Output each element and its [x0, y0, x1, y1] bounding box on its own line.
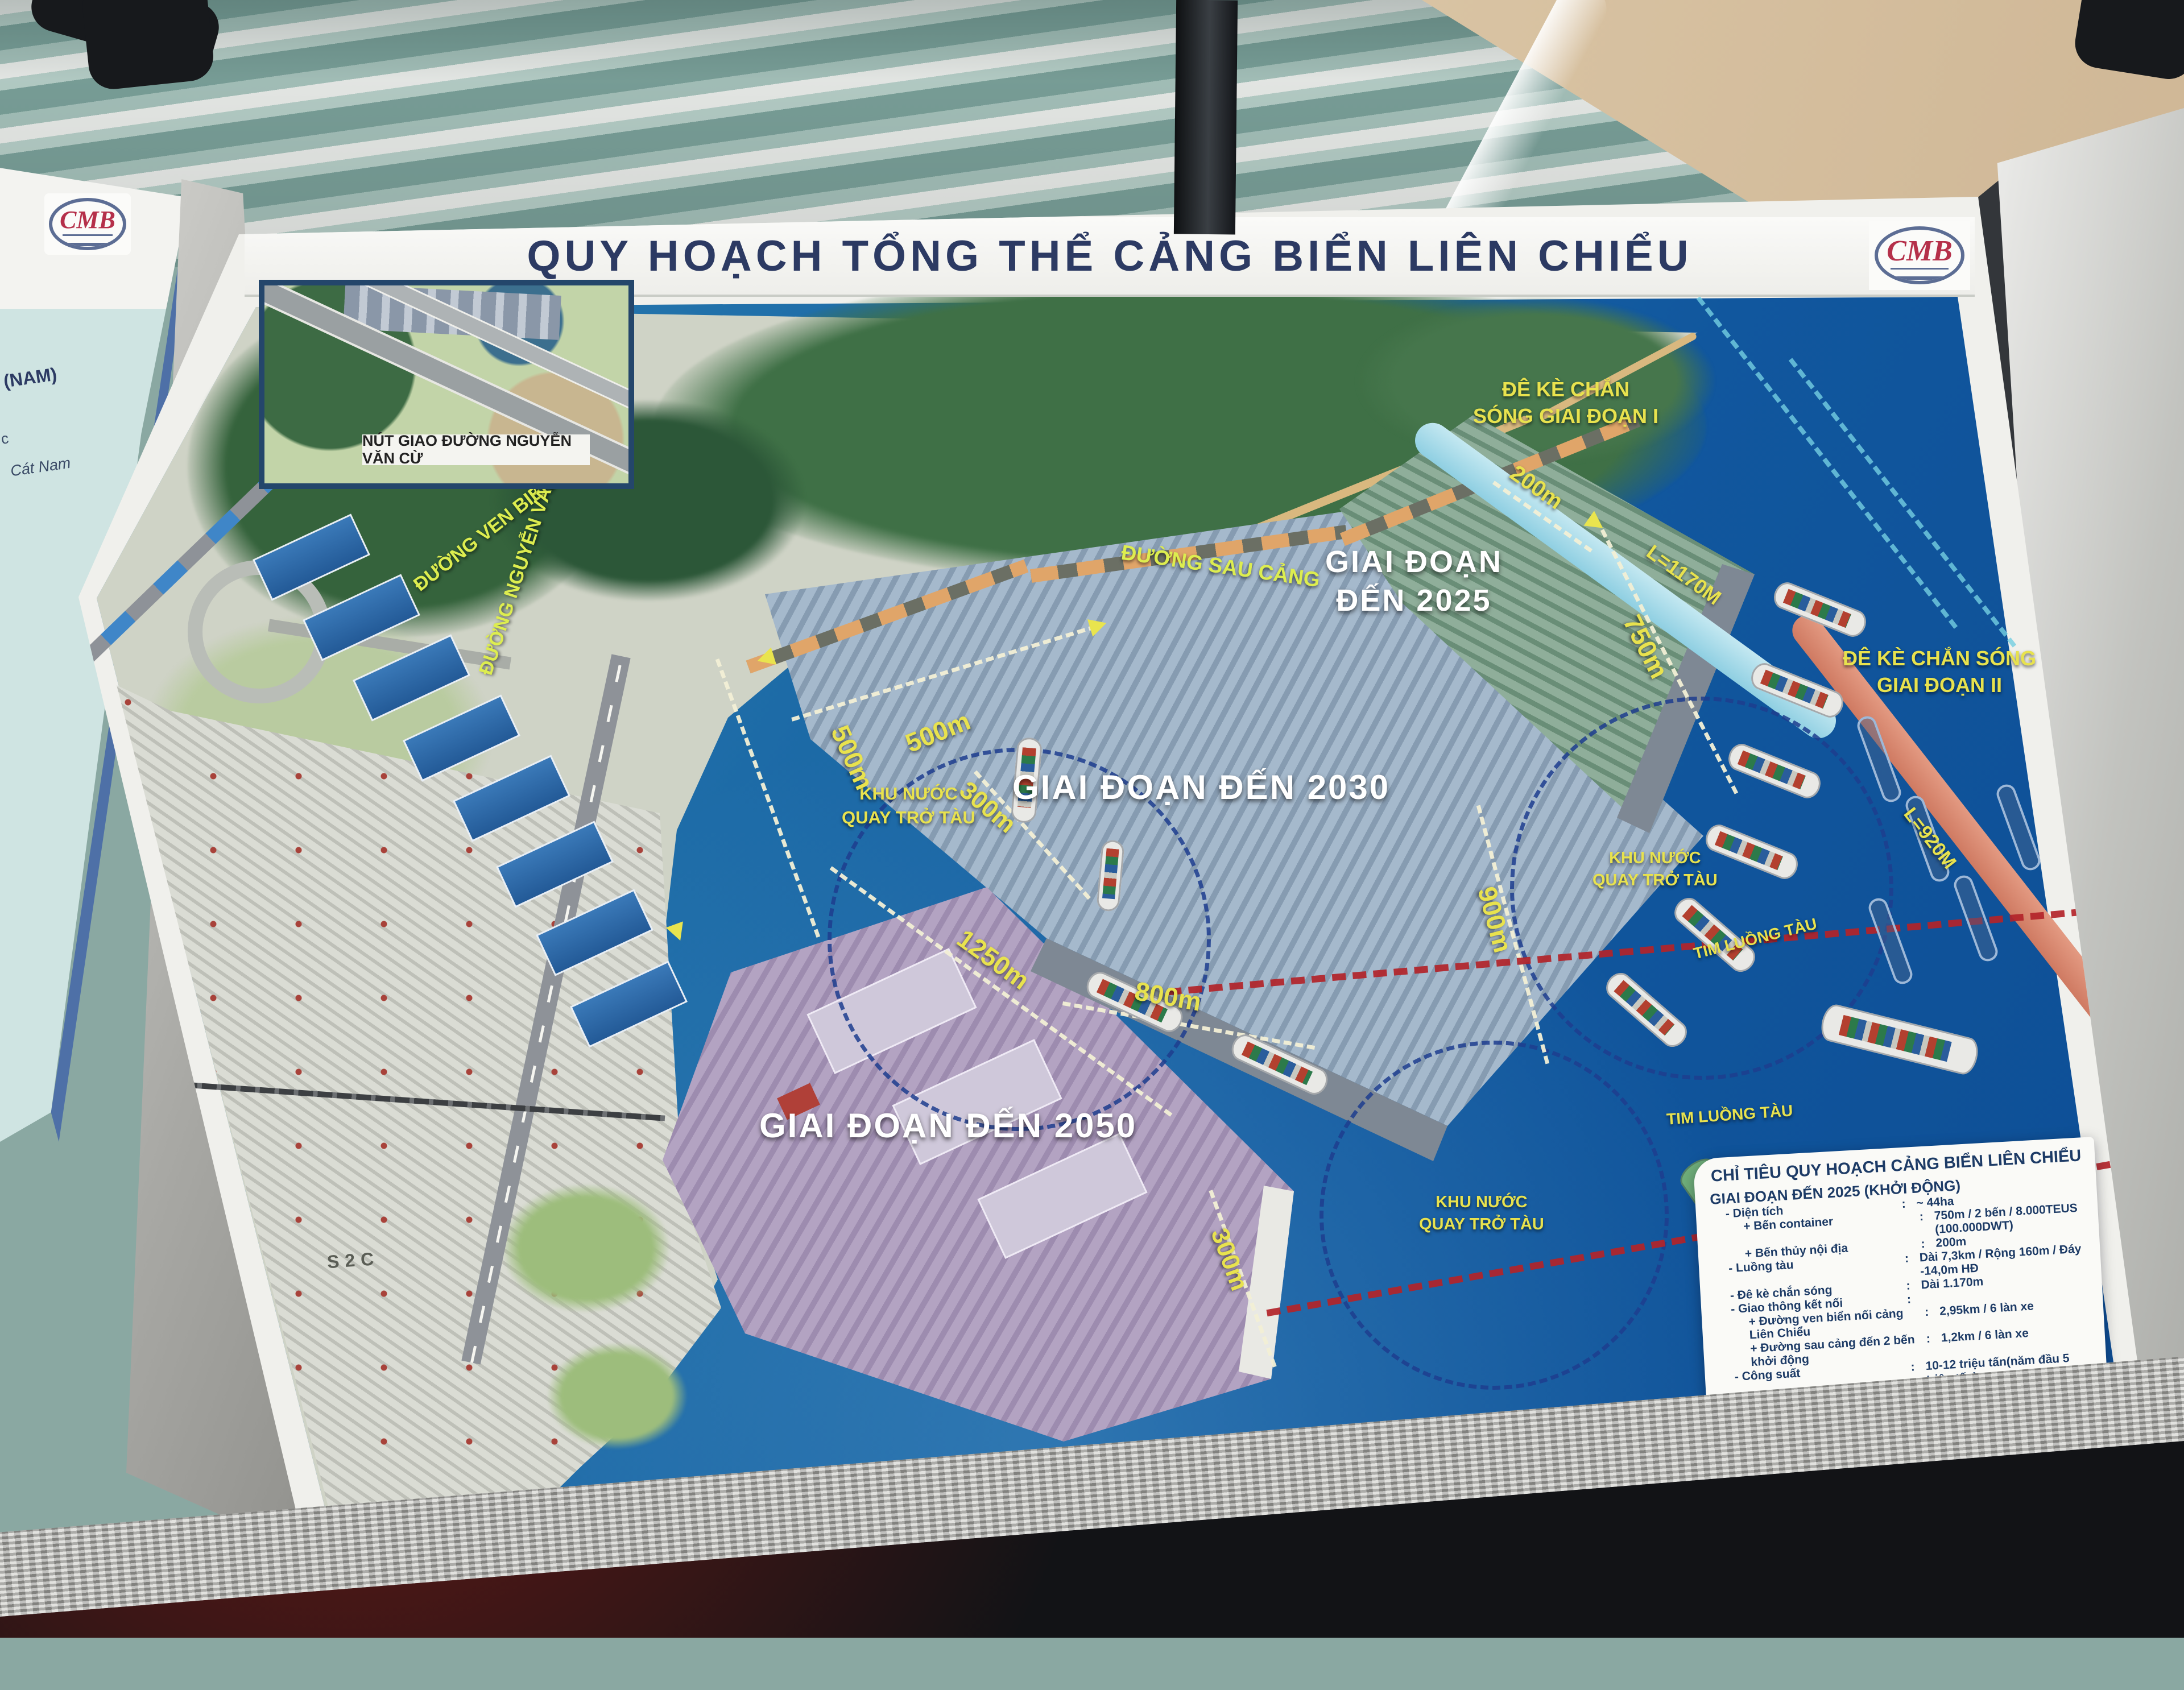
person-silhouette-shoulder	[80, 0, 216, 92]
spec-row-colon: :	[1925, 1304, 1941, 1332]
breakwater2-label: ĐÊ KÈ CHẮN SÓNG GIAI ĐOẠN II	[1843, 645, 2036, 699]
cmb-logo: CMB	[1869, 221, 1970, 290]
breakwater1-label: ĐÊ KÈ CHẮN SÓNG GIAI ĐOẠN I	[1473, 376, 1658, 430]
spec-row-colon: :	[1901, 1197, 1917, 1211]
phase-2025-line2: ĐẾN 2025	[1325, 582, 1503, 620]
park-green	[500, 1183, 671, 1314]
phase-2025-line1: GIAI ĐOẠN	[1325, 543, 1503, 582]
spec-row-colon: :	[1927, 1654, 1942, 1668]
inset-caption: NÚT GIAO ĐƯỜNG NGUYỄN VĂN CỪ	[362, 434, 590, 465]
breakwater1-line2: SÓNG GIAI ĐOẠN I	[1473, 403, 1658, 430]
spec-row-colon: :	[1921, 1237, 1936, 1251]
photo-of-port-masterplan-poster: { "colors": { "sea": "#11579e", "phase_2…	[0, 0, 2184, 1638]
spec-row-value: ~90ha	[1942, 1645, 2112, 1668]
frame-marking: S2C	[326, 1248, 380, 1273]
park-green	[546, 1342, 688, 1450]
basin-line1: KHU NƯỚC	[1592, 847, 1718, 869]
spec-row: -Diện tích:~90ha	[1736, 1645, 2111, 1679]
cmb-logo-oval: CMB	[49, 198, 127, 250]
left-poster-text-fragment: Cát Nam	[9, 454, 72, 481]
cmb-logo-text: CMB	[1887, 234, 1953, 268]
phase-2025-label: GIAI ĐOẠN ĐẾN 2025	[1325, 543, 1503, 620]
breakwater2-line1: ĐÊ KÈ CHẮN SÓNG	[1843, 645, 2036, 672]
interchange-inset-map: NÚT GIAO ĐƯỜNG NGUYỄN VĂN CỪ	[259, 280, 634, 489]
spec-row-colon: :	[1904, 1251, 1921, 1279]
spec-row-colon: :	[1919, 1209, 1935, 1237]
stand-pole	[1174, 0, 1238, 235]
cmb-logo-oval: CMB	[1875, 226, 1964, 284]
left-poster-text-fragment: (NAM)	[2, 364, 58, 392]
spec-row-colon: :	[1906, 1278, 1921, 1293]
spec-row-colon: :	[1906, 1292, 1922, 1306]
basin-line2: QUAY TRỞ TÀU	[842, 806, 975, 830]
cmb-logo-text: CMB	[60, 205, 115, 234]
spec-row-colon: :	[1926, 1332, 1942, 1360]
turning-basin-label: KHU NƯỚC QUAY TRỞ TÀU	[1419, 1191, 1544, 1236]
cmb-logo-lines	[63, 234, 112, 243]
cmb-logo-lines	[1891, 268, 1949, 276]
breakwater2-line2: GIAI ĐOẠN II	[1843, 672, 2036, 699]
left-poster-text-fragment: c	[0, 429, 10, 448]
phase-2050-label: GIAI ĐOẠN ĐẾN 2050	[759, 1106, 1137, 1145]
basin-line2: QUAY TRỞ TÀU	[1592, 869, 1718, 892]
basin-line1: KHU NƯỚC	[1419, 1191, 1544, 1213]
turning-basin-label: KHU NƯỚC QUAY TRỞ TÀU	[1592, 847, 1718, 892]
phase-2030-label: GIAI ĐOẠN ĐẾN 2030	[1012, 768, 1390, 807]
spec-row-label: -Diện tích	[1736, 1655, 1927, 1679]
poster-title: QUY HOẠCH TỔNG THỂ CẢNG BIỂN LIÊN CHIỂU	[527, 231, 1692, 281]
basin-line2: QUAY TRỞ TÀU	[1419, 1213, 1544, 1236]
breakwater1-line1: ĐÊ KÈ CHẮN	[1473, 376, 1658, 403]
cmb-logo: CMB	[44, 193, 131, 255]
